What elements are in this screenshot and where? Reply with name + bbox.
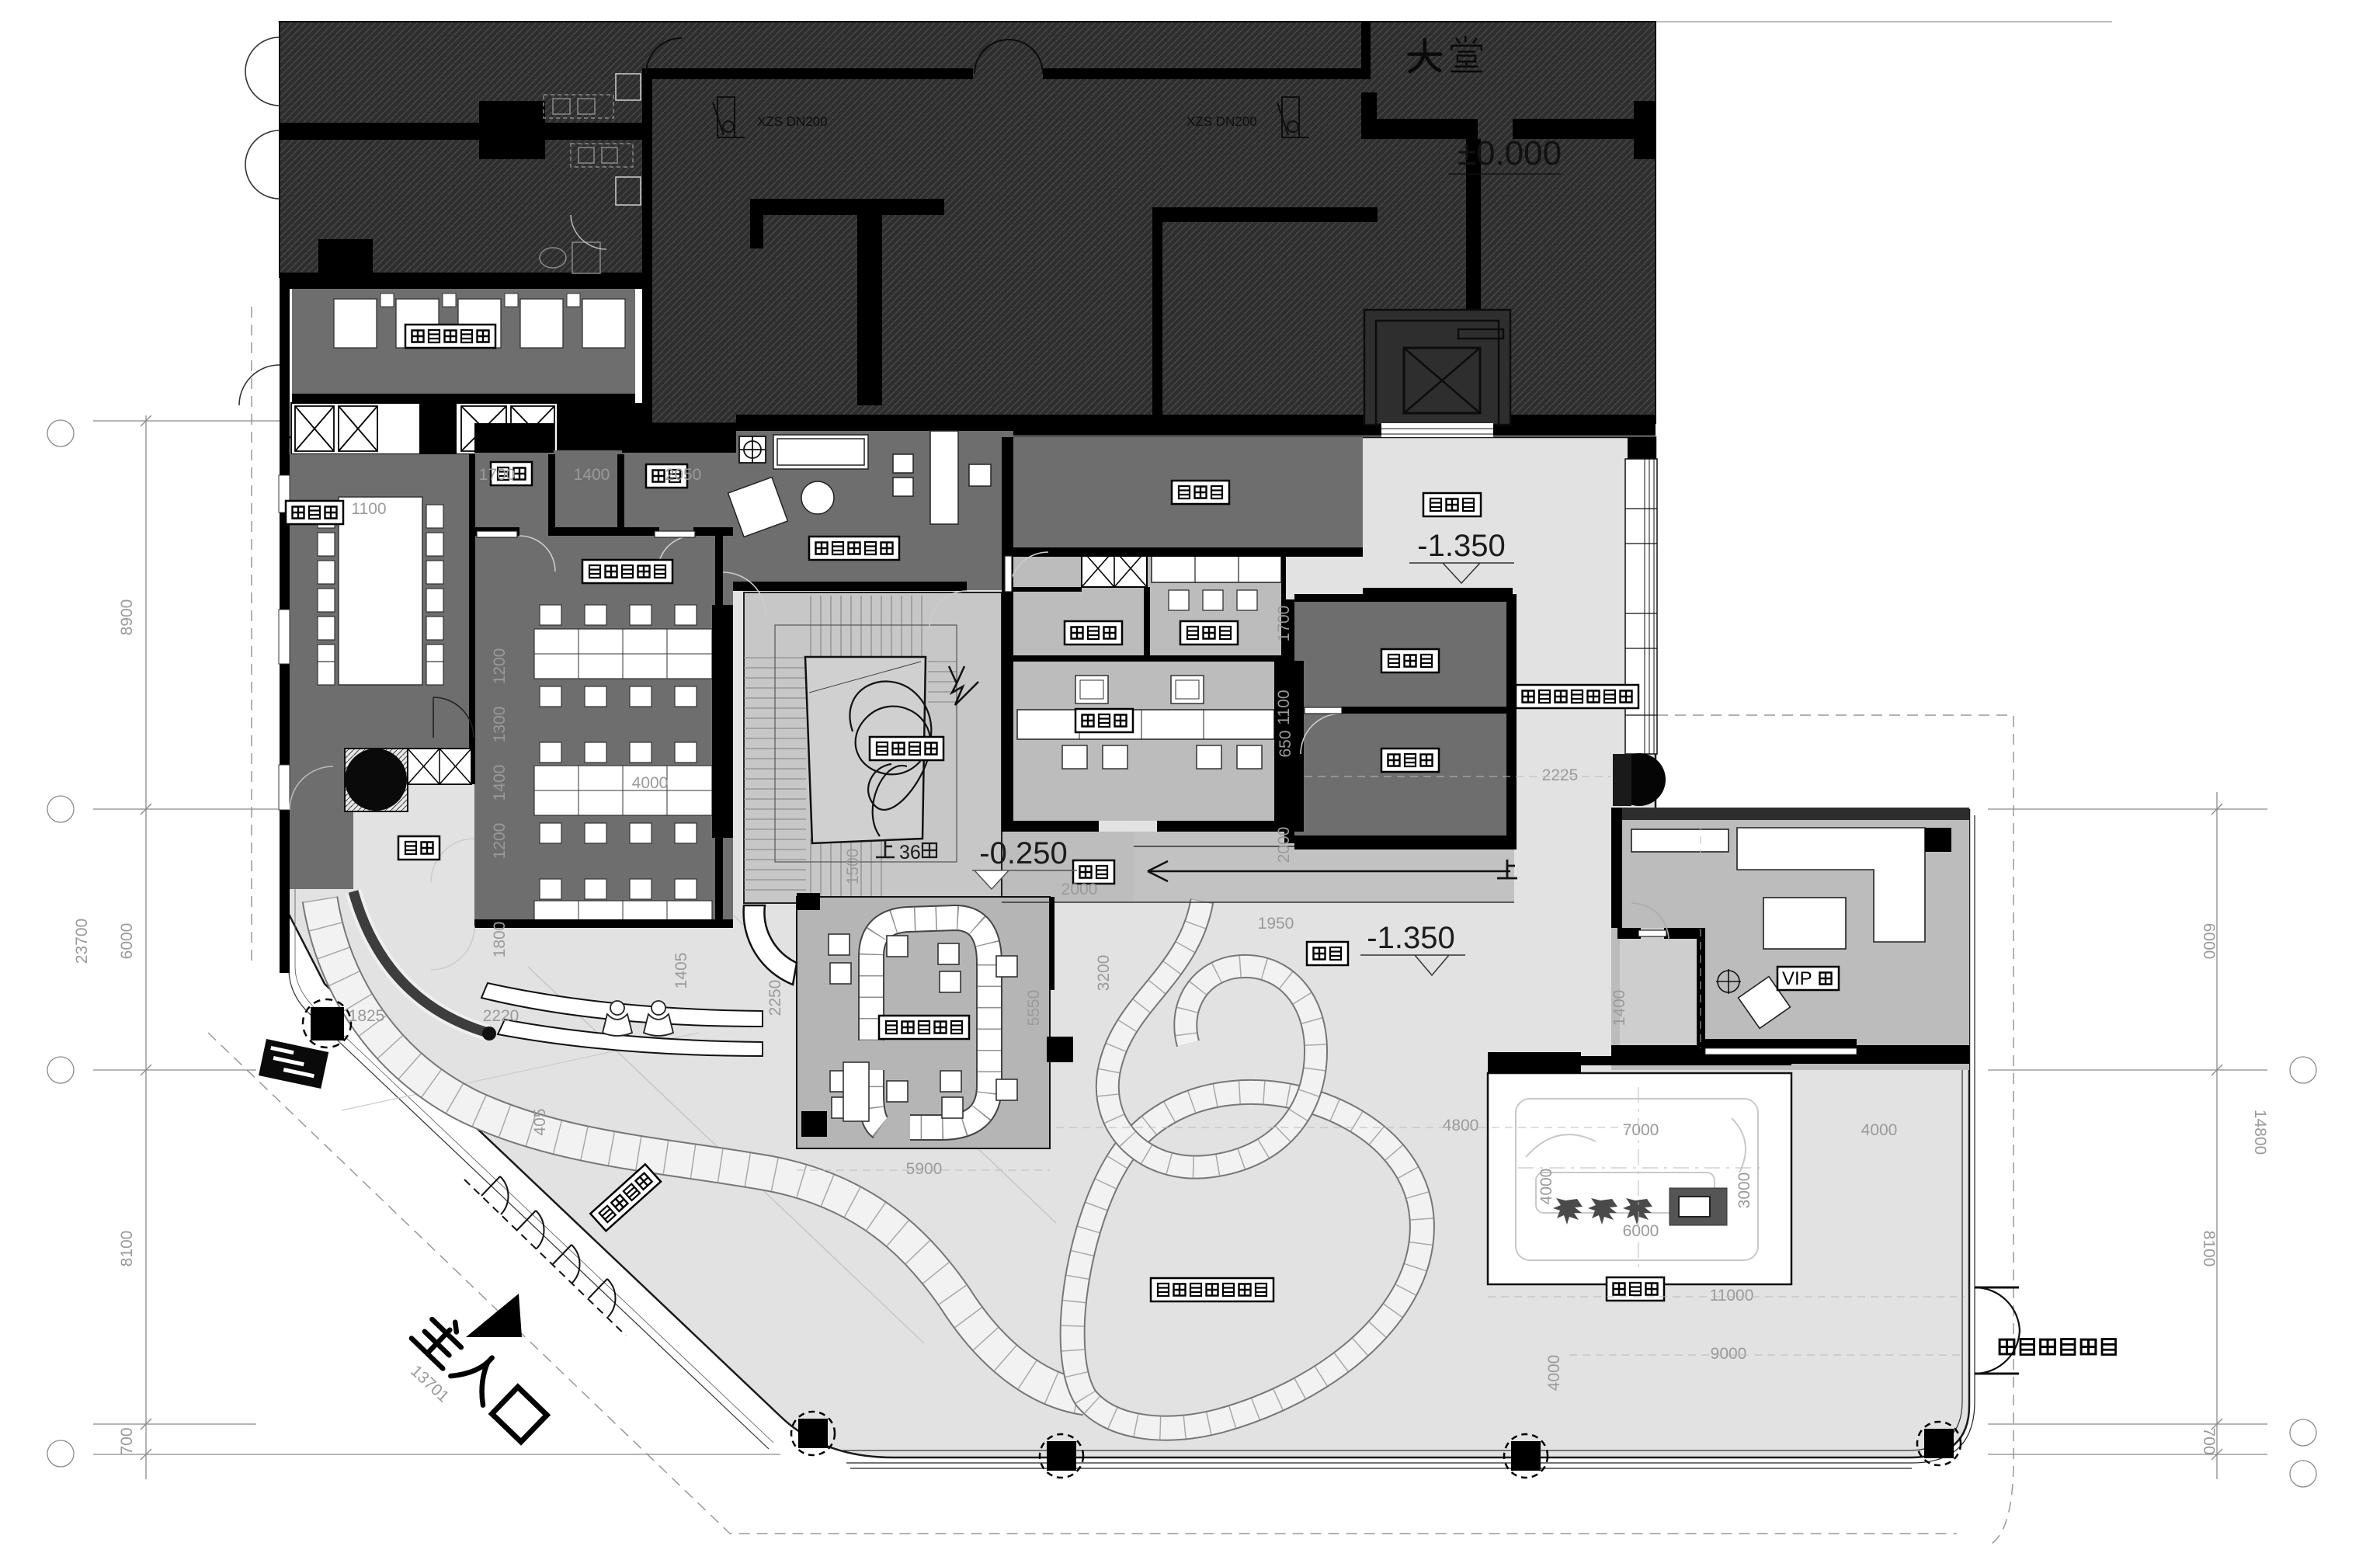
svg-text:11000: 11000 — [1710, 1287, 1754, 1305]
svg-text:700: 700 — [2200, 1427, 2218, 1454]
svg-text:1400: 1400 — [574, 466, 610, 484]
svg-text:1950: 1950 — [1258, 915, 1294, 933]
svg-text:2250: 2250 — [766, 980, 784, 1016]
svg-text:6000: 6000 — [1623, 1222, 1659, 1240]
svg-text:-1.350: -1.350 — [1367, 921, 1454, 955]
svg-text:1400: 1400 — [491, 765, 509, 801]
svg-text:9000: 9000 — [1711, 1345, 1747, 1363]
svg-text:405: 405 — [531, 1108, 549, 1135]
svg-text:VIP: VIP — [1782, 968, 1812, 989]
svg-text:4000: 4000 — [1537, 1169, 1555, 1205]
svg-text:8100: 8100 — [118, 1231, 136, 1267]
svg-text:3000: 3000 — [1735, 1173, 1753, 1209]
svg-text:2050: 2050 — [665, 466, 702, 484]
svg-text:XZS DN200: XZS DN200 — [757, 114, 828, 129]
svg-text:1500: 1500 — [844, 849, 862, 885]
svg-text:1825: 1825 — [349, 1007, 385, 1025]
svg-text:6000: 6000 — [2200, 923, 2218, 960]
svg-text:1700: 1700 — [1275, 606, 1293, 642]
svg-text:2000: 2000 — [1275, 827, 1293, 863]
svg-text:4000: 4000 — [1861, 1121, 1898, 1139]
svg-text:1100: 1100 — [351, 500, 386, 518]
svg-text:1200: 1200 — [491, 648, 509, 685]
svg-text:2225: 2225 — [1542, 766, 1579, 784]
svg-text:5900: 5900 — [906, 1160, 943, 1178]
svg-text:650: 650 — [1277, 730, 1294, 757]
svg-text:8900: 8900 — [118, 599, 136, 636]
svg-text:7000: 7000 — [1623, 1121, 1659, 1139]
svg-text:-0.250: -0.250 — [979, 836, 1067, 870]
svg-text:4000: 4000 — [632, 774, 669, 792]
svg-text:6000: 6000 — [118, 923, 136, 960]
svg-text:4800: 4800 — [1443, 1117, 1479, 1134]
svg-text:±0.000: ±0.000 — [1458, 134, 1562, 172]
svg-text:5550: 5550 — [1025, 990, 1043, 1027]
svg-text:14800: 14800 — [2251, 1110, 2269, 1155]
svg-text:1400: 1400 — [1610, 990, 1628, 1027]
svg-text:1700: 1700 — [479, 466, 516, 484]
svg-text:2000: 2000 — [1061, 881, 1098, 898]
svg-text:1100: 1100 — [1275, 690, 1293, 724]
svg-text:23700: 23700 — [73, 919, 91, 964]
svg-text:1300: 1300 — [491, 707, 509, 743]
svg-text:1800: 1800 — [491, 922, 509, 958]
svg-text:4000: 4000 — [1545, 1355, 1563, 1391]
svg-text:1200: 1200 — [491, 823, 509, 860]
svg-text:3200: 3200 — [1095, 955, 1113, 992]
svg-text:-1.350: -1.350 — [1417, 529, 1505, 563]
svg-text:1405: 1405 — [672, 953, 690, 989]
svg-text:8100: 8100 — [2200, 1231, 2218, 1267]
svg-text:700: 700 — [118, 1427, 136, 1454]
svg-text:XZS DN200: XZS DN200 — [1187, 114, 1257, 129]
svg-text:36: 36 — [899, 842, 921, 863]
svg-text:2220: 2220 — [483, 1007, 519, 1025]
